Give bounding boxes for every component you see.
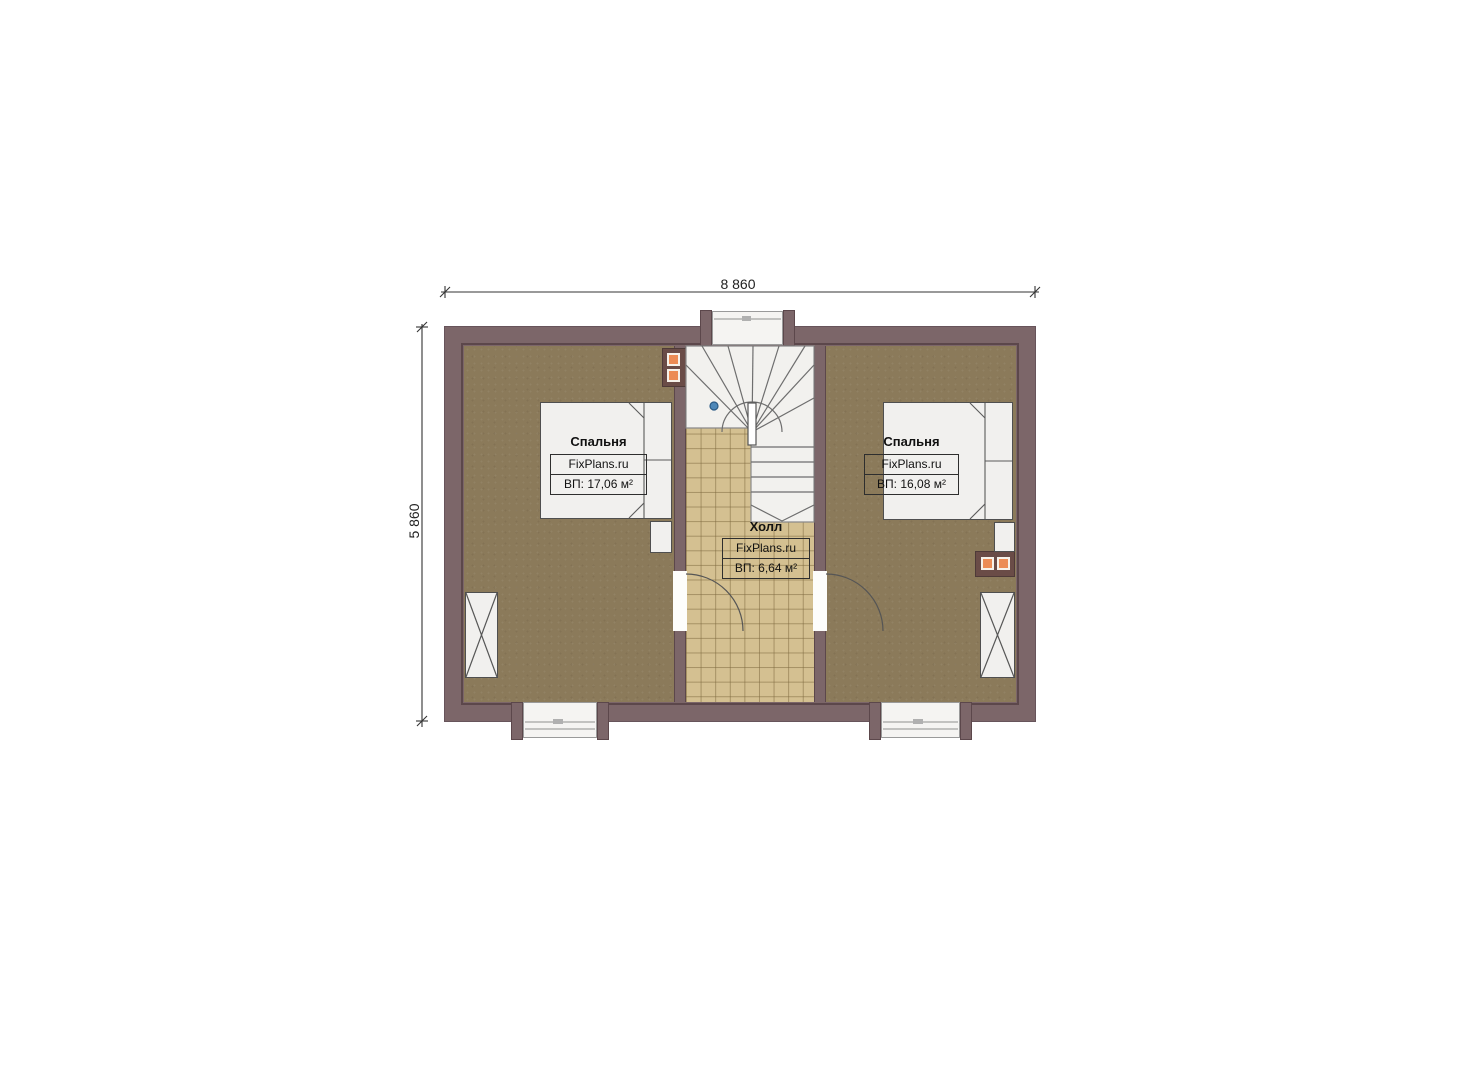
window-bottom-right bbox=[881, 702, 960, 738]
heater-vent-icon bbox=[997, 557, 1010, 570]
window-top-jamb bbox=[700, 310, 712, 346]
nightstand-left bbox=[650, 521, 672, 553]
brand-label: FixPlans.ru bbox=[551, 455, 646, 474]
floor-plan-page: 8 860 5 860 Спальня FixPlans.ru ВП: 17,0… bbox=[0, 0, 1474, 1080]
door-opening-right bbox=[813, 571, 827, 631]
window-bottom-left-jamb bbox=[597, 702, 609, 740]
bedroom-right-name: Спальня bbox=[864, 434, 959, 449]
window-bottom-right-jamb bbox=[960, 702, 972, 740]
bedroom-right-info: FixPlans.ru ВП: 16,08 м² bbox=[864, 454, 959, 495]
heater-vent-icon bbox=[981, 557, 994, 570]
window-top-jamb bbox=[783, 310, 795, 346]
window-bottom-right-jamb bbox=[869, 702, 881, 740]
hall-name: Холл bbox=[722, 519, 810, 534]
flue-vent-icon bbox=[667, 369, 680, 382]
brand-label: FixPlans.ru bbox=[723, 539, 809, 558]
window-bottom-left bbox=[523, 702, 597, 738]
wardrobe-right bbox=[980, 592, 1015, 678]
area-label: ВП: 17,06 м² bbox=[551, 474, 646, 494]
brand-label: FixPlans.ru bbox=[865, 455, 958, 474]
area-label: ВП: 16,08 м² bbox=[865, 474, 958, 494]
nightstand-right bbox=[994, 522, 1015, 552]
window-bottom-left-jamb bbox=[511, 702, 523, 740]
hall-wall-right bbox=[814, 346, 826, 702]
bedroom-left-name: Спальня bbox=[550, 434, 647, 449]
dimension-width-label: 8 860 bbox=[688, 276, 788, 292]
window-top bbox=[712, 311, 783, 345]
flue-vent-icon bbox=[667, 353, 680, 366]
wardrobe-left bbox=[465, 592, 498, 678]
hall-wall-left bbox=[674, 346, 686, 702]
door-opening-left bbox=[673, 571, 687, 631]
dimension-height-label: 5 860 bbox=[406, 481, 422, 561]
area-label: ВП: 6,64 м² bbox=[723, 558, 809, 578]
hall-info: FixPlans.ru ВП: 6,64 м² bbox=[722, 538, 810, 579]
bedroom-left-info: FixPlans.ru ВП: 17,06 м² bbox=[550, 454, 647, 495]
